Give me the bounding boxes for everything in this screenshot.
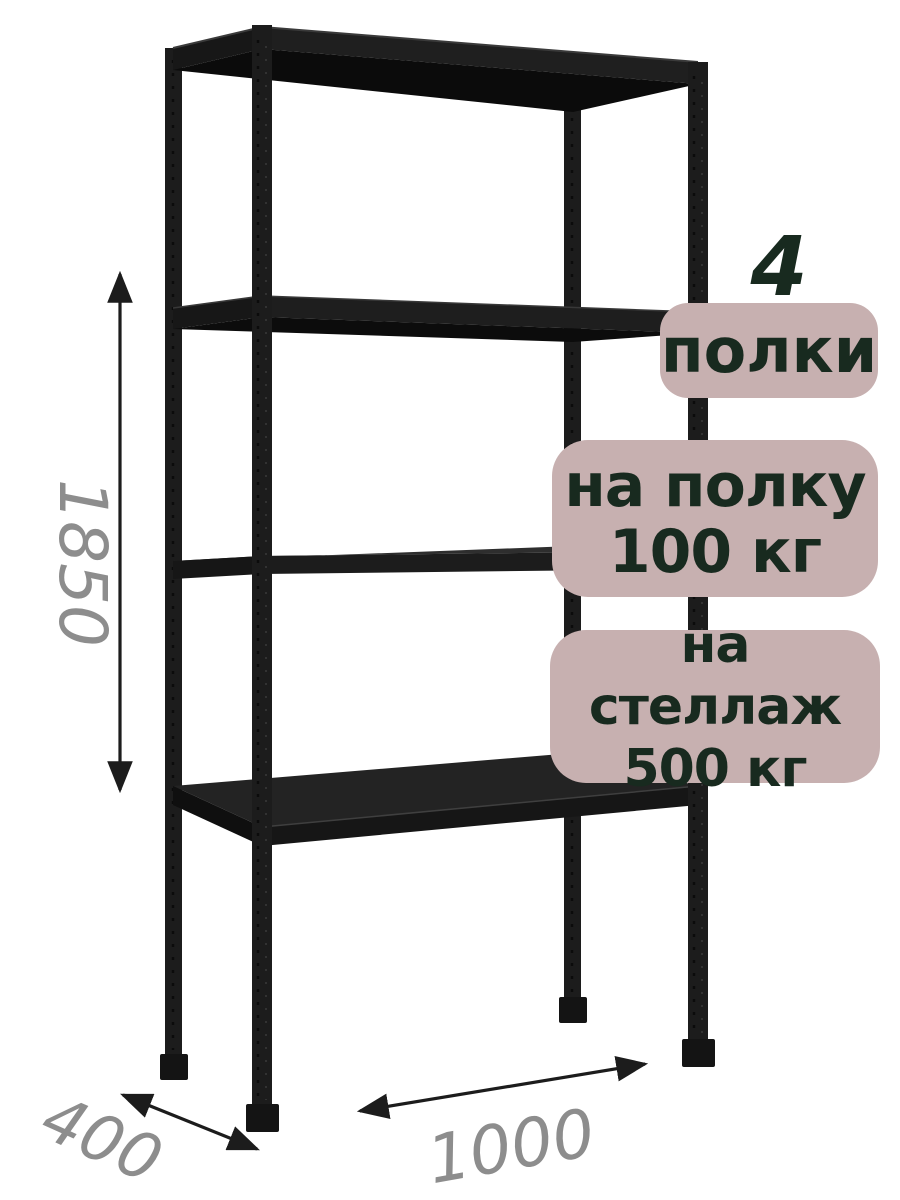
- depth-dimension: 400: [31, 1081, 257, 1198]
- shelf-count-label: полки: [661, 314, 877, 387]
- width-value-label: 1000: [422, 1094, 601, 1199]
- per-rack-load-line1: на стеллаж: [550, 614, 880, 738]
- shelving-rack-illustration: 1850 400 1000: [0, 0, 900, 1200]
- front-right-foot: [682, 1039, 715, 1067]
- front-left-post: [246, 25, 279, 1132]
- width-dimension: 1000: [360, 1064, 645, 1199]
- shelf-2: [173, 296, 698, 342]
- shelf-count-badge: полки: [660, 303, 878, 398]
- back-left-foot: [160, 1054, 188, 1080]
- shelf-top: [173, 27, 698, 112]
- width-arrow-icon: [360, 1064, 645, 1111]
- per-shelf-load-line1: на полку: [564, 453, 865, 519]
- front-left-foot: [246, 1104, 279, 1132]
- shelf-count-number: 4: [733, 228, 825, 308]
- per-rack-load-badge: на стеллаж 500 кг: [550, 630, 880, 783]
- height-dimension: 1850: [44, 274, 121, 790]
- per-shelf-load-badge: на полку 100 кг: [552, 440, 878, 597]
- per-shelf-load-line2: 100 кг: [609, 519, 821, 585]
- per-rack-load-line2: 500 кг: [623, 738, 806, 800]
- height-value-label: 1850: [44, 479, 121, 647]
- back-right-foot: [559, 997, 587, 1023]
- depth-value-label: 400: [31, 1081, 173, 1198]
- product-dimension-image: 1850 400 1000 4 полки на полку 100 кг на…: [0, 0, 900, 1200]
